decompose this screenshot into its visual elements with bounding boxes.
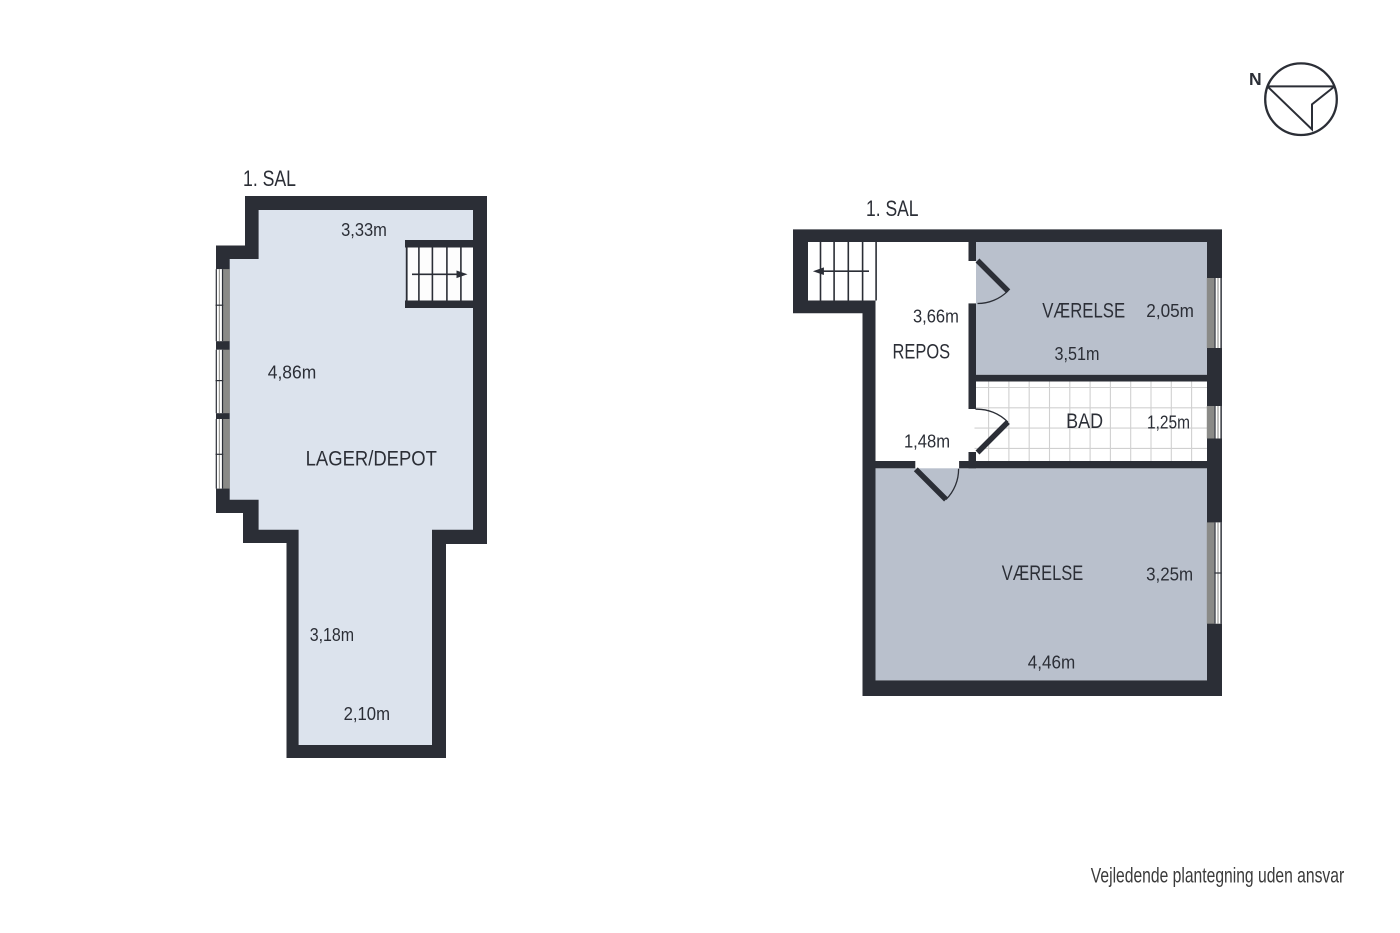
svg-text:2,10m: 2,10m	[344, 703, 390, 724]
svg-text:3,51m: 3,51m	[1055, 343, 1100, 364]
svg-text:1. SAL: 1. SAL	[243, 166, 296, 191]
svg-text:1,48m: 1,48m	[904, 431, 950, 452]
svg-text:1,25m: 1,25m	[1147, 411, 1190, 432]
svg-text:3,33m: 3,33m	[341, 219, 387, 240]
svg-text:Vejledende plantegning uden an: Vejledende plantegning uden ansvar	[1091, 865, 1344, 888]
svg-text:LAGER/DEPOT: LAGER/DEPOT	[306, 448, 437, 471]
svg-text:BAD: BAD	[1066, 410, 1103, 433]
svg-text:VÆRELSE: VÆRELSE	[1042, 300, 1125, 323]
svg-text:3,18m: 3,18m	[310, 624, 354, 645]
svg-text:4,86m: 4,86m	[268, 361, 317, 382]
svg-text:VÆRELSE: VÆRELSE	[1002, 562, 1083, 585]
svg-text:4,46m: 4,46m	[1028, 651, 1076, 672]
svg-text:3,66m: 3,66m	[913, 306, 959, 327]
svg-text:REPOS: REPOS	[893, 341, 951, 364]
svg-text:1. SAL: 1. SAL	[866, 196, 919, 221]
svg-text:N: N	[1249, 69, 1262, 89]
svg-text:2,05m: 2,05m	[1146, 300, 1194, 321]
svg-text:3,25m: 3,25m	[1146, 564, 1193, 585]
